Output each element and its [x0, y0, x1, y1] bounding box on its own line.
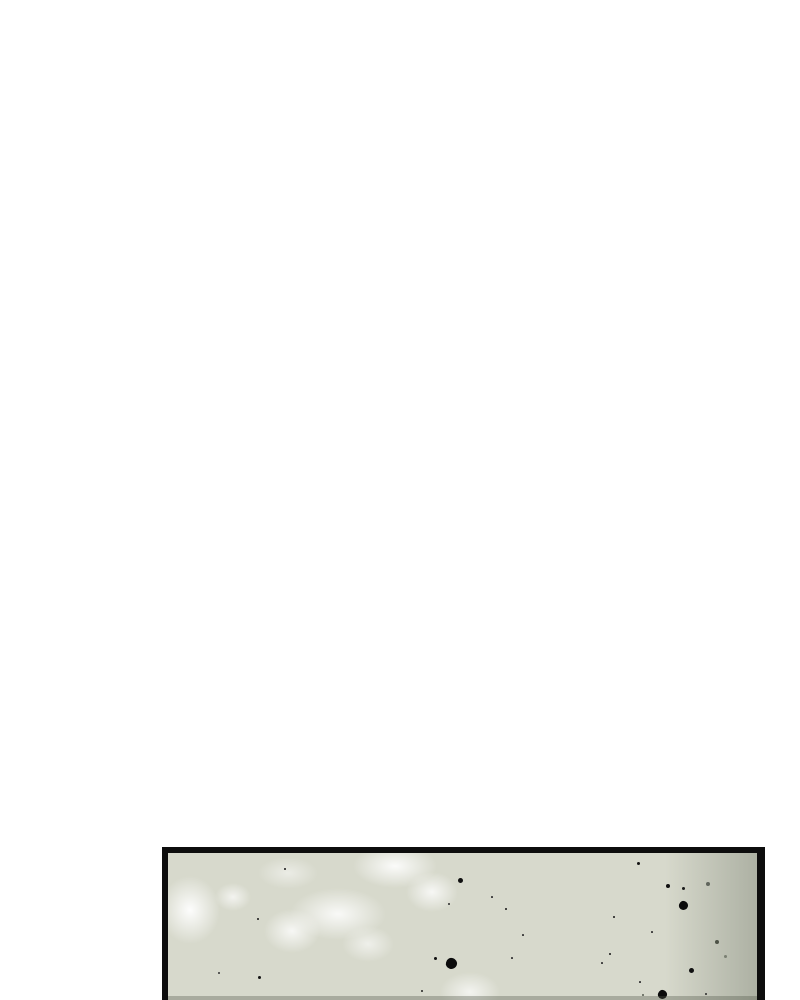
- ink-speckle: [522, 934, 524, 936]
- bottom-shadow-layer: [168, 853, 757, 1000]
- ink-speckle: [666, 884, 670, 888]
- ink-speckle: [444, 956, 458, 970]
- ink-speckle: [434, 957, 437, 960]
- ink-speckle: [505, 908, 507, 910]
- ink-speckle: [613, 916, 615, 918]
- smoke-highlight: [342, 926, 394, 962]
- ink-speckle: [724, 955, 727, 958]
- ink-speckle: [705, 993, 707, 995]
- ink-speckle: [284, 868, 286, 870]
- ink-speckle: [677, 899, 688, 910]
- ink-speckle: [689, 968, 694, 973]
- smoke-highlights-layer: [168, 853, 757, 1000]
- ink-speckle: [258, 976, 261, 979]
- smoke-highlight: [290, 888, 386, 940]
- smoke-highlight: [353, 853, 437, 888]
- ink-speckle: [257, 918, 259, 920]
- ink-speckle: [637, 862, 640, 865]
- smoke-highlight: [264, 909, 320, 953]
- bottom-shadow: [168, 996, 757, 1000]
- smoke-highlight: [406, 872, 458, 912]
- ink-speckle: [639, 981, 641, 983]
- right-shadow: [665, 853, 757, 1000]
- panel-artwork: [168, 853, 757, 1000]
- ink-speckle: [682, 887, 685, 890]
- ink-speckle: [715, 940, 719, 944]
- ink-speckle: [601, 962, 603, 964]
- smoke-highlight: [258, 857, 318, 889]
- ink-speckle: [651, 931, 653, 933]
- ink-speckle: [491, 896, 493, 898]
- ink-speckle: [642, 994, 644, 996]
- smoke-highlight: [168, 876, 220, 944]
- ink-speckle: [706, 882, 710, 886]
- comic-panel: [162, 847, 765, 1000]
- page-background: [0, 0, 800, 1000]
- ink-speckle: [218, 972, 220, 974]
- right-shadow-layer: [168, 853, 757, 1000]
- smoke-highlight: [440, 972, 500, 1000]
- ink-speckle: [609, 953, 611, 955]
- speckles-layer: [168, 853, 757, 1000]
- smoke-highlight: [215, 883, 251, 911]
- ink-speckle: [421, 990, 423, 992]
- ink-speckle: [458, 878, 463, 883]
- ink-speckle: [656, 988, 667, 999]
- ink-speckle: [448, 903, 450, 905]
- ink-speckle: [511, 957, 513, 959]
